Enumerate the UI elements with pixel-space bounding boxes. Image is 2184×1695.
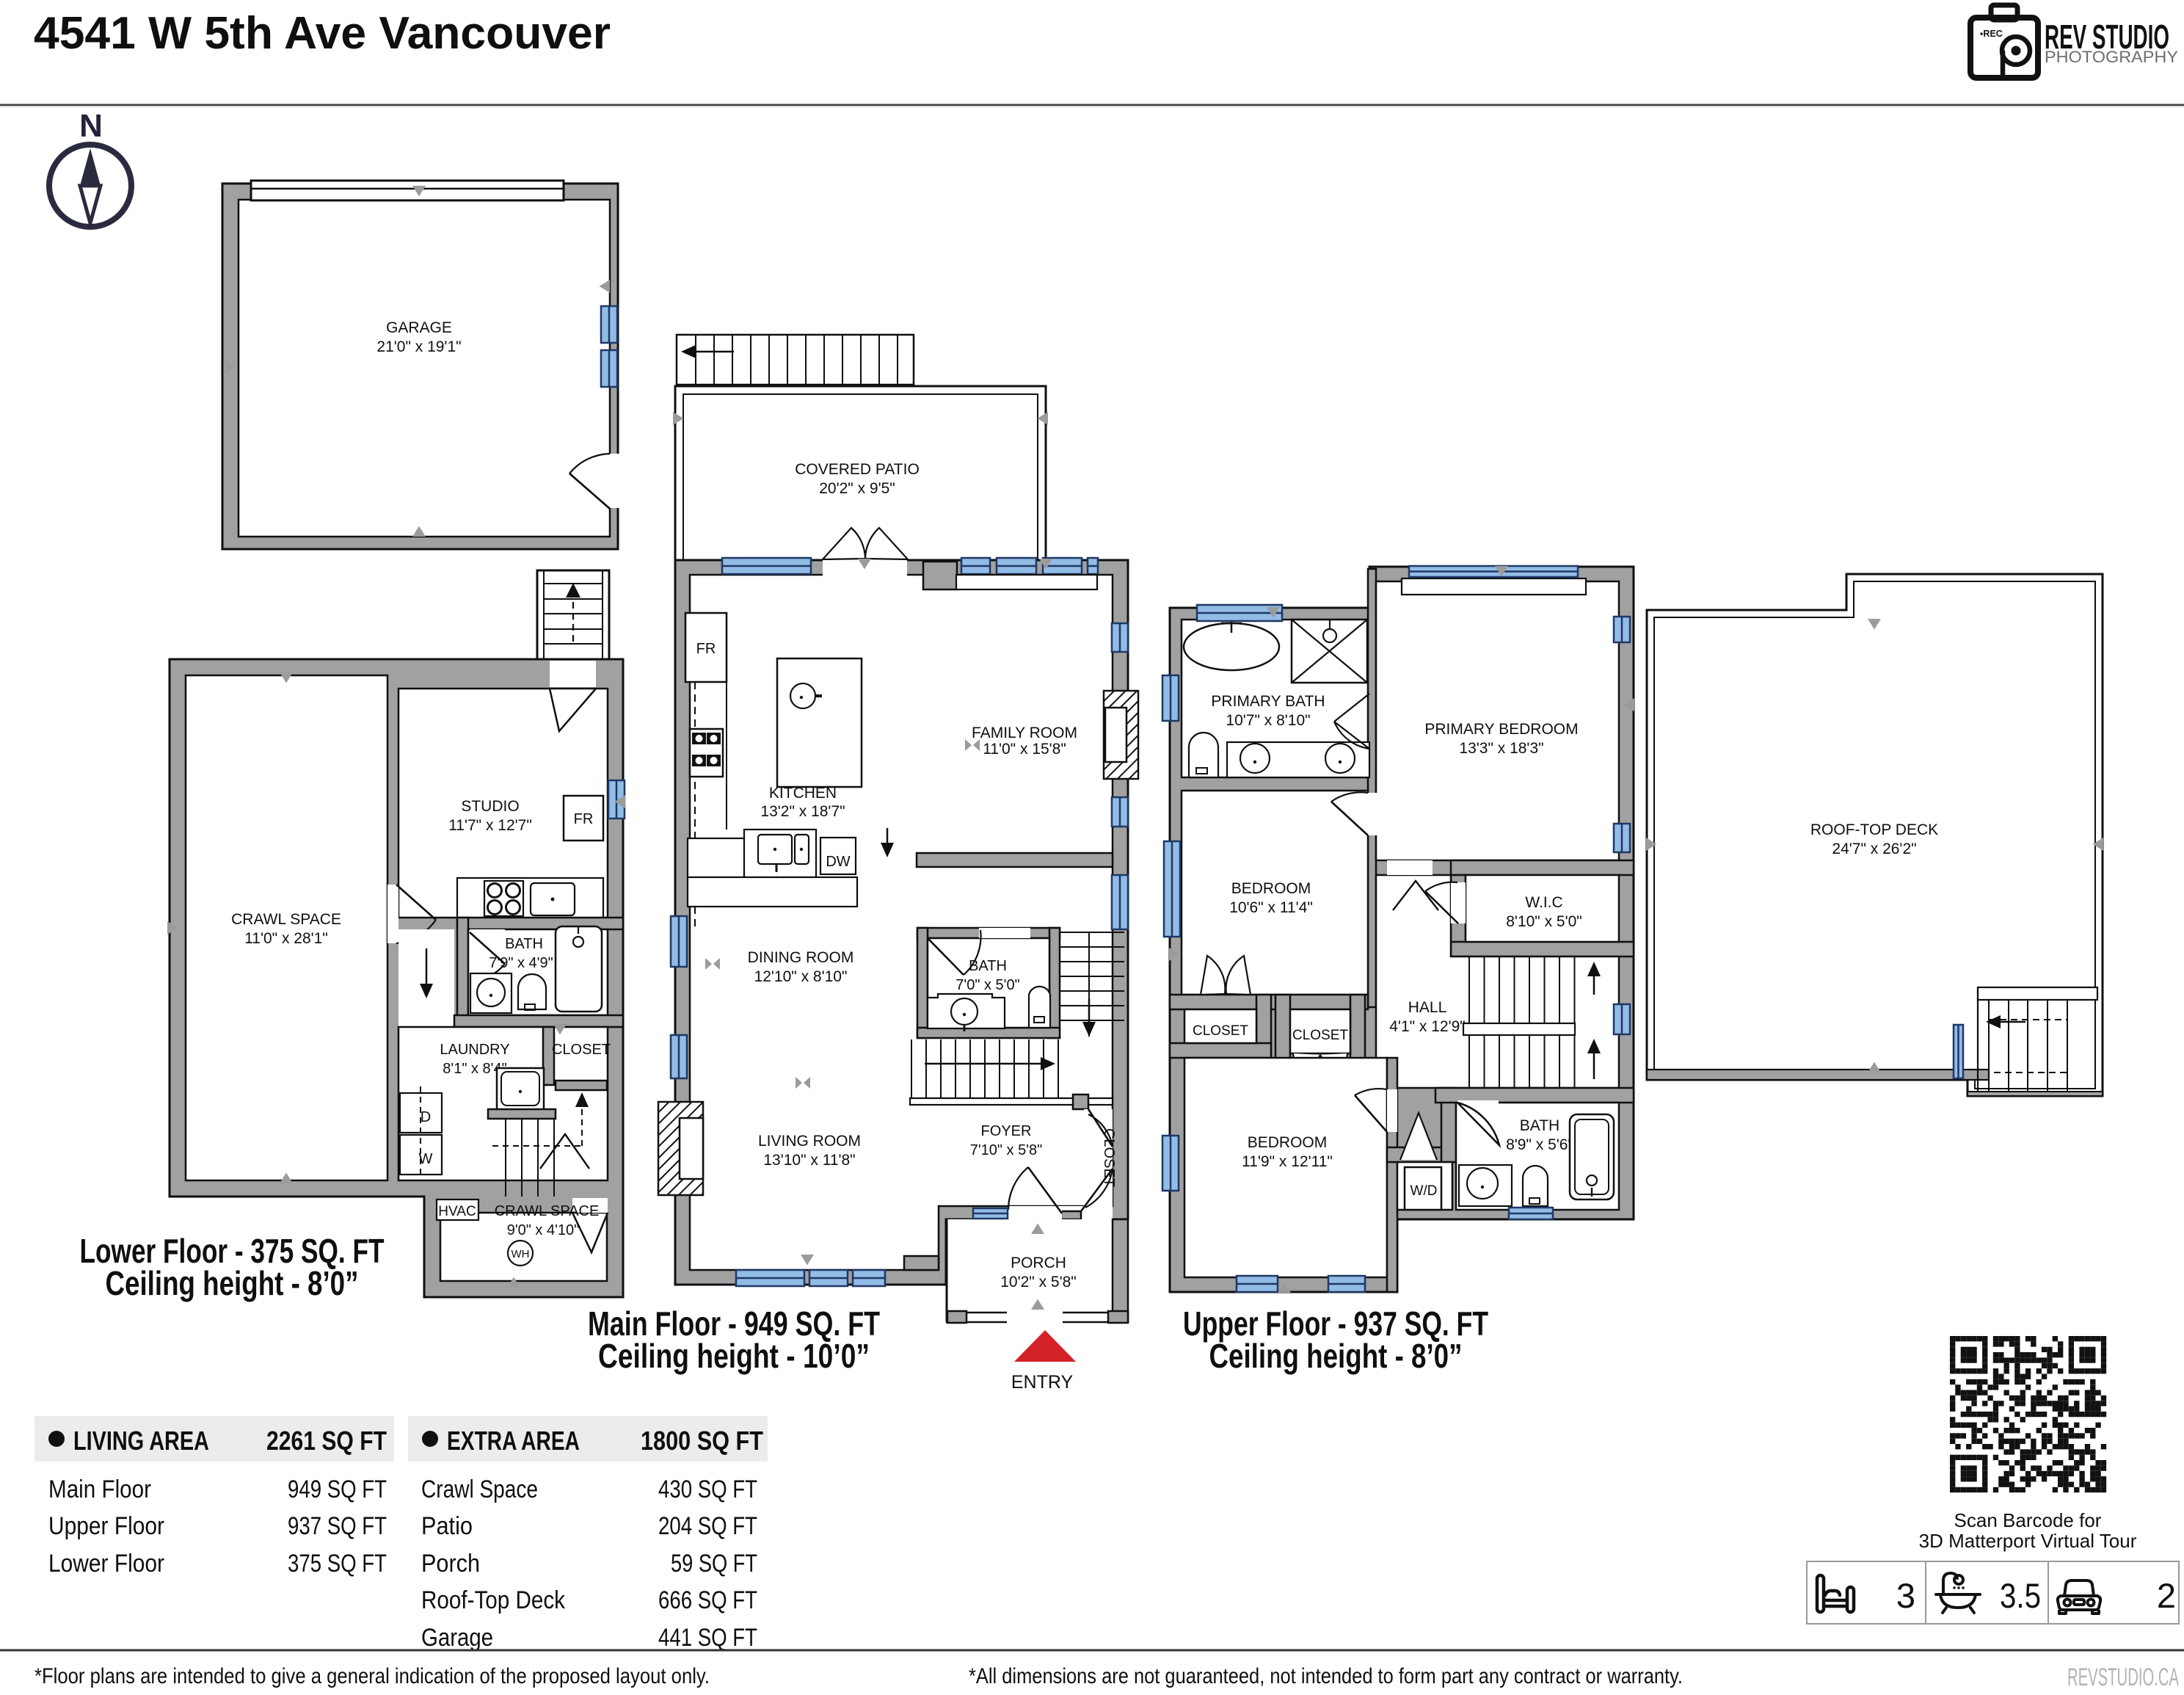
svg-text:Garage: Garage bbox=[421, 1624, 493, 1652]
svg-text:10'7" x 8'10": 10'7" x 8'10" bbox=[1226, 712, 1310, 729]
svg-text:PORCH: PORCH bbox=[1011, 1255, 1066, 1271]
svg-text:BATH: BATH bbox=[505, 936, 543, 952]
svg-text:13'10" x 11'8": 13'10" x 11'8" bbox=[763, 1152, 855, 1169]
svg-text:949 SQ FT: 949 SQ FT bbox=[288, 1476, 387, 1503]
svg-text:BATH: BATH bbox=[1520, 1117, 1559, 1134]
svg-text:2: 2 bbox=[2157, 1576, 2176, 1615]
svg-text:FAMILY ROOM: FAMILY ROOM bbox=[972, 725, 1077, 741]
svg-text:CRAWL SPACE: CRAWL SPACE bbox=[231, 911, 341, 928]
svg-text:13'3" x 18'3": 13'3" x 18'3" bbox=[1459, 740, 1543, 757]
svg-text:12'10" x 8'10": 12'10" x 8'10" bbox=[754, 968, 848, 985]
svg-text:430 SQ FT: 430 SQ FT bbox=[658, 1476, 757, 1503]
svg-text:Ceiling height - 10’0”: Ceiling height - 10’0” bbox=[598, 1337, 870, 1375]
svg-text:13'2" x 18'7": 13'2" x 18'7" bbox=[760, 803, 845, 820]
svg-text:REVSTUDIO.CA: REVSTUDIO.CA bbox=[2067, 1663, 2179, 1691]
svg-text:Porch: Porch bbox=[421, 1550, 480, 1578]
svg-text:FOYER: FOYER bbox=[981, 1123, 1032, 1139]
svg-text:Lower Floor: Lower Floor bbox=[48, 1550, 164, 1578]
svg-text:666 SQ FT: 666 SQ FT bbox=[658, 1586, 757, 1614]
svg-text:Patio: Patio bbox=[421, 1512, 473, 1540]
svg-text:3: 3 bbox=[1896, 1576, 1915, 1615]
svg-text:Scan Barcode for: Scan Barcode for bbox=[1954, 1509, 2102, 1531]
svg-text:204 SQ FT: 204 SQ FT bbox=[658, 1512, 757, 1540]
svg-text:COVERED PATIO: COVERED PATIO bbox=[795, 461, 920, 478]
svg-text:D: D bbox=[421, 1109, 431, 1125]
svg-text:CRAWL SPACE: CRAWL SPACE bbox=[495, 1203, 600, 1219]
svg-text:4541 W 5th Ave Vancouver: 4541 W 5th Ave Vancouver bbox=[34, 8, 611, 59]
svg-text:3.5: 3.5 bbox=[2000, 1576, 2041, 1615]
svg-text:4'1" x 12'9": 4'1" x 12'9" bbox=[1389, 1018, 1466, 1035]
svg-text:PRIMARY BEDROOM: PRIMARY BEDROOM bbox=[1424, 721, 1578, 738]
svg-text:8'9" x 5'6": 8'9" x 5'6" bbox=[1506, 1136, 1573, 1153]
svg-text:Ceiling height - 8’0”: Ceiling height - 8’0” bbox=[1209, 1337, 1463, 1375]
svg-text:W/D: W/D bbox=[1410, 1183, 1438, 1199]
svg-text:▪REC: ▪REC bbox=[1980, 29, 2003, 39]
svg-text:1800 SQ FT: 1800 SQ FT bbox=[641, 1426, 763, 1456]
svg-text:DINING ROOM: DINING ROOM bbox=[748, 949, 854, 966]
svg-text:3D Matterport Virtual Tour: 3D Matterport Virtual Tour bbox=[1919, 1530, 2137, 1552]
svg-text:937 SQ FT: 937 SQ FT bbox=[288, 1512, 387, 1540]
svg-text:Crawl Space: Crawl Space bbox=[421, 1476, 538, 1503]
svg-text:LIVING ROOM: LIVING ROOM bbox=[758, 1133, 861, 1150]
svg-text:20'2" x 9'5": 20'2" x 9'5" bbox=[819, 480, 895, 497]
svg-text:PRIMARY BATH: PRIMARY BATH bbox=[1211, 693, 1325, 710]
svg-text:N: N bbox=[79, 108, 103, 144]
svg-text:BEDROOM: BEDROOM bbox=[1231, 880, 1311, 897]
svg-text:ENTRY: ENTRY bbox=[1011, 1372, 1074, 1393]
svg-text:STUDIO: STUDIO bbox=[461, 798, 519, 815]
svg-text:LIVING AREA: LIVING AREA bbox=[73, 1426, 209, 1456]
svg-text:59 SQ FT: 59 SQ FT bbox=[671, 1550, 757, 1578]
svg-text:7'10" x 5'8": 7'10" x 5'8" bbox=[970, 1142, 1043, 1158]
svg-text:ROOF-TOP DECK: ROOF-TOP DECK bbox=[1810, 821, 1938, 838]
svg-text:W.I.C: W.I.C bbox=[1525, 894, 1562, 911]
svg-text:CLOSET: CLOSET bbox=[1292, 1028, 1348, 1043]
svg-text:11'0" x 28'1": 11'0" x 28'1" bbox=[244, 930, 328, 947]
svg-text:KITCHEN: KITCHEN bbox=[769, 785, 837, 802]
svg-text:CLOSET: CLOSET bbox=[552, 1042, 611, 1058]
svg-text:HALL: HALL bbox=[1408, 999, 1447, 1016]
svg-text:11'7" x 12'7": 11'7" x 12'7" bbox=[448, 817, 532, 834]
svg-text:10'2" x 5'8": 10'2" x 5'8" bbox=[1000, 1274, 1077, 1291]
svg-text:PHOTOGRAPHY: PHOTOGRAPHY bbox=[2045, 48, 2178, 66]
svg-text:EXTRA AREA: EXTRA AREA bbox=[447, 1426, 580, 1456]
svg-text:BEDROOM: BEDROOM bbox=[1248, 1134, 1328, 1151]
svg-text:WH: WH bbox=[512, 1248, 530, 1260]
svg-text:375 SQ FT: 375 SQ FT bbox=[288, 1550, 387, 1578]
svg-text:Roof-Top Deck: Roof-Top Deck bbox=[421, 1586, 566, 1614]
svg-text:Upper Floor: Upper Floor bbox=[48, 1512, 164, 1540]
svg-text:*All dimensions are not guaran: *All dimensions are not guaranteed, not … bbox=[969, 1664, 1683, 1688]
svg-text:LAUNDRY: LAUNDRY bbox=[440, 1042, 509, 1058]
svg-text:8'10" x 5'0": 8'10" x 5'0" bbox=[1506, 913, 1582, 930]
svg-text:7'0" x 5'0": 7'0" x 5'0" bbox=[955, 977, 1019, 993]
svg-text:DW: DW bbox=[826, 854, 850, 870]
svg-text:FR: FR bbox=[696, 641, 716, 657]
svg-text:11'0" x 15'8": 11'0" x 15'8" bbox=[983, 741, 1066, 758]
svg-text:CLOSET: CLOSET bbox=[1101, 1128, 1117, 1187]
svg-text:2261 SQ FT: 2261 SQ FT bbox=[266, 1426, 387, 1456]
svg-text:9'0" x 4'10": 9'0" x 4'10" bbox=[507, 1222, 580, 1238]
svg-text:FR: FR bbox=[574, 811, 594, 827]
svg-text:*Floor plans are intended to g: *Floor plans are intended to give a gene… bbox=[34, 1664, 710, 1688]
svg-text:441 SQ FT: 441 SQ FT bbox=[658, 1624, 757, 1652]
svg-text:CLOSET: CLOSET bbox=[1193, 1023, 1248, 1039]
svg-text:11'9" x 12'11": 11'9" x 12'11" bbox=[1242, 1153, 1333, 1170]
svg-text:Main Floor: Main Floor bbox=[48, 1476, 151, 1503]
svg-text:10'6" x 11'4": 10'6" x 11'4" bbox=[1229, 899, 1313, 916]
svg-text:HVAC: HVAC bbox=[438, 1204, 476, 1219]
svg-text:Ceiling height - 8’0”: Ceiling height - 8’0” bbox=[106, 1264, 359, 1302]
svg-text:GARAGE: GARAGE bbox=[386, 319, 452, 336]
svg-text:24'7" x 26'2": 24'7" x 26'2" bbox=[1832, 841, 1916, 857]
svg-text:21'0" x 19'1": 21'0" x 19'1" bbox=[376, 338, 461, 355]
